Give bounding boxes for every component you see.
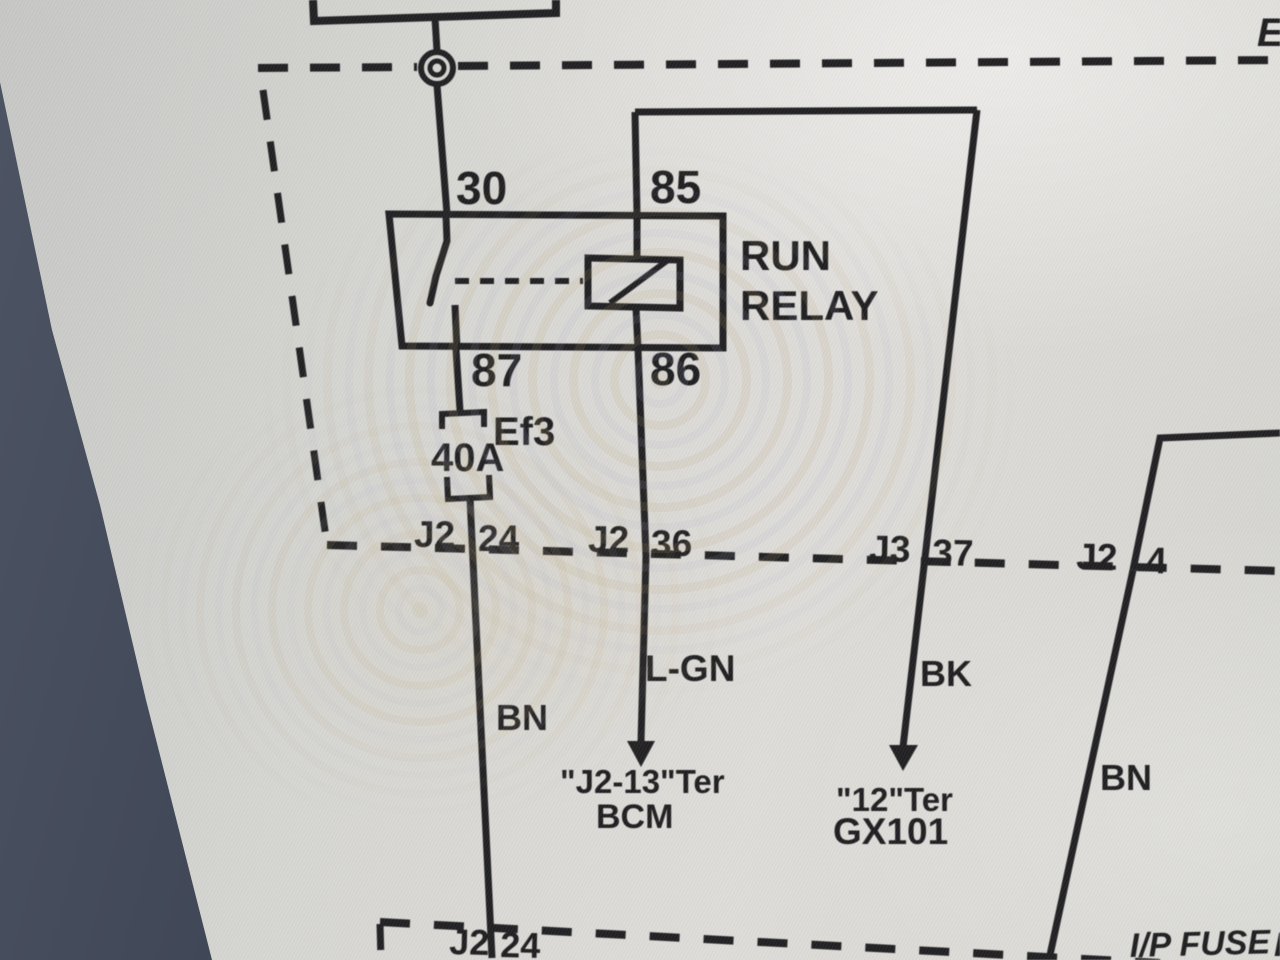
gx101-termination-line2: GX101 bbox=[833, 811, 948, 852]
wire-bk-label: BK bbox=[920, 653, 972, 694]
photo-of-screen: 30 85 87 86 RUN RELAY Ef3 40A J2 24 J2 3… bbox=[0, 0, 1280, 960]
top-right-clipped-letter: E bbox=[1257, 11, 1280, 55]
wire-bn-left-label: BN bbox=[496, 697, 548, 738]
relay-switch-contact bbox=[455, 305, 457, 349]
connector-row-1-conn: J2 bbox=[588, 519, 629, 560]
relay-name-line2: RELAY bbox=[740, 282, 879, 329]
wiring-diagram: 30 85 87 86 RUN RELAY Ef3 40A J2 24 J2 3… bbox=[0, 0, 1280, 960]
gx101-arrow-icon bbox=[889, 745, 918, 771]
wire-85-riser bbox=[635, 112, 637, 214]
wire-bk-vertical bbox=[903, 110, 977, 747]
fuse-top-bracket bbox=[442, 412, 484, 429]
terminal-87-label: 87 bbox=[471, 344, 522, 396]
top-component-box bbox=[313, 0, 556, 21]
fuse-block-dashed-top-left bbox=[258, 67, 417, 68]
terminal-30-label: 30 bbox=[456, 162, 507, 214]
fuse-rating-label: 40A bbox=[431, 436, 504, 480]
bottom-connector-pin: 24 bbox=[500, 924, 541, 960]
connector-row-1-pin: 36 bbox=[651, 523, 692, 564]
terminal-85-label: 85 bbox=[650, 161, 701, 213]
connector-row-0-pin: 24 bbox=[478, 518, 520, 559]
connector-row-3-conn: J2 bbox=[1076, 536, 1118, 578]
ip-fuse-block-dashed-left bbox=[380, 924, 381, 960]
bcm-termination-line2: BCM bbox=[596, 798, 673, 836]
ip-fuse-block-dashed-top bbox=[380, 922, 1160, 960]
terminal-86-label: 86 bbox=[650, 343, 701, 395]
wire-box-to-splice bbox=[435, 18, 437, 51]
connector-row-2-pin: 37 bbox=[932, 532, 974, 574]
splice-connector-inner-icon bbox=[430, 61, 444, 75]
ip-fuse-block-label-clipped-letter: B bbox=[1274, 926, 1280, 960]
bottom-connector-conn: J2 bbox=[449, 921, 490, 960]
connector-row-0-conn: J2 bbox=[414, 514, 455, 555]
ip-fuse-block-label: I/P FUSE bbox=[1129, 923, 1272, 960]
wire-bn-left bbox=[470, 498, 492, 958]
wire-bn-far-right-label: BN bbox=[1100, 757, 1152, 798]
wire-coil-to-86 bbox=[636, 308, 638, 349]
fuse-block-dashed-top-right bbox=[458, 60, 1280, 66]
relay-coil-diagonal bbox=[610, 260, 668, 303]
wire-lgn-label: L-GN bbox=[645, 648, 735, 689]
splice-connector-icon bbox=[421, 52, 453, 84]
connector-row-2-conn: J3 bbox=[869, 528, 911, 570]
wire-87-to-fuse bbox=[456, 349, 460, 411]
relay-switch-blade bbox=[430, 216, 447, 303]
fuse-block-dashed-left bbox=[263, 90, 327, 545]
connector-row-3-pin: 4 bbox=[1146, 540, 1168, 581]
bcm-termination-line1: "J2-13"Ter bbox=[560, 763, 725, 800]
relay-name-line1: RUN bbox=[740, 232, 831, 279]
wire-85-top-horizontal bbox=[635, 110, 977, 112]
wire-splice-to-terminal-30 bbox=[437, 85, 447, 214]
